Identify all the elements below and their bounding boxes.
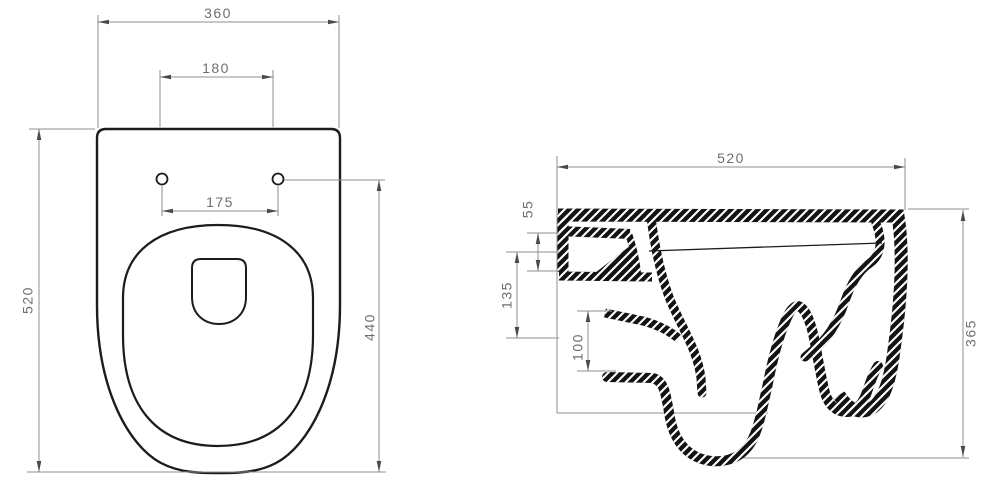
dim-rim-to-inlet-label: 55 xyxy=(520,200,536,219)
dim-overall-height-label: 365 xyxy=(963,319,979,347)
dim-overall-height: 365 xyxy=(908,209,979,457)
dim-section-depth: 520 xyxy=(557,150,905,210)
dim-overall-width-label: 360 xyxy=(204,5,232,21)
dim-holes-to-front-label: 440 xyxy=(362,313,378,341)
mounting-hole-left xyxy=(157,174,168,185)
arrow-down-icon xyxy=(536,260,541,271)
dim-inner-width-label: 180 xyxy=(202,60,230,76)
dim-rim-to-inlet: 55 xyxy=(520,200,559,271)
arrow-up-icon xyxy=(586,311,591,322)
arrow-up-icon xyxy=(377,180,382,191)
arrow-left-icon xyxy=(98,20,109,25)
arrow-right-icon xyxy=(328,20,339,25)
dim-inlet-to-outlet-label: 135 xyxy=(499,281,515,309)
arrow-down-icon xyxy=(377,461,382,472)
dim-overall-depth: 520 xyxy=(20,129,95,472)
arrow-left-icon xyxy=(557,165,568,170)
dim-inlet-to-outlet: 135 xyxy=(499,252,559,338)
arrow-left-icon xyxy=(162,209,173,214)
arrow-down-icon xyxy=(586,360,591,371)
dim-hole-spacing-label: 175 xyxy=(206,194,234,210)
dim-section-depth-label: 520 xyxy=(717,150,745,166)
arrow-up-icon xyxy=(536,233,541,244)
arrow-up-icon xyxy=(961,210,966,221)
arrow-left-icon xyxy=(160,75,171,80)
arrow-right-icon xyxy=(262,75,273,80)
technical-drawing-canvas: 360 180 175 xyxy=(0,0,1000,489)
dim-hole-spacing: 175 xyxy=(162,186,278,216)
dim-overall-depth-label: 520 xyxy=(20,286,36,314)
dim-inner-width: 180 xyxy=(160,60,273,127)
dim-holes-to-front: 440 xyxy=(284,180,385,472)
section-view: 520 55 135 xyxy=(499,150,979,461)
mounting-hole-right xyxy=(273,174,284,185)
toilet-body-outline xyxy=(97,129,340,473)
arrow-right-icon xyxy=(267,209,278,214)
dim-outlet-height-label: 100 xyxy=(570,333,586,361)
dim-outlet-height: 100 xyxy=(570,311,616,371)
bowl-water-line xyxy=(649,243,882,251)
arrow-down-icon xyxy=(961,446,966,457)
arrow-down-icon xyxy=(515,327,520,338)
flush-opening-outline xyxy=(192,259,246,324)
top-view: 360 180 175 xyxy=(20,5,386,473)
arrow-right-icon xyxy=(894,165,905,170)
arrow-down-icon xyxy=(37,461,42,472)
arrow-up-icon xyxy=(37,129,42,140)
arrow-up-icon xyxy=(515,252,520,263)
